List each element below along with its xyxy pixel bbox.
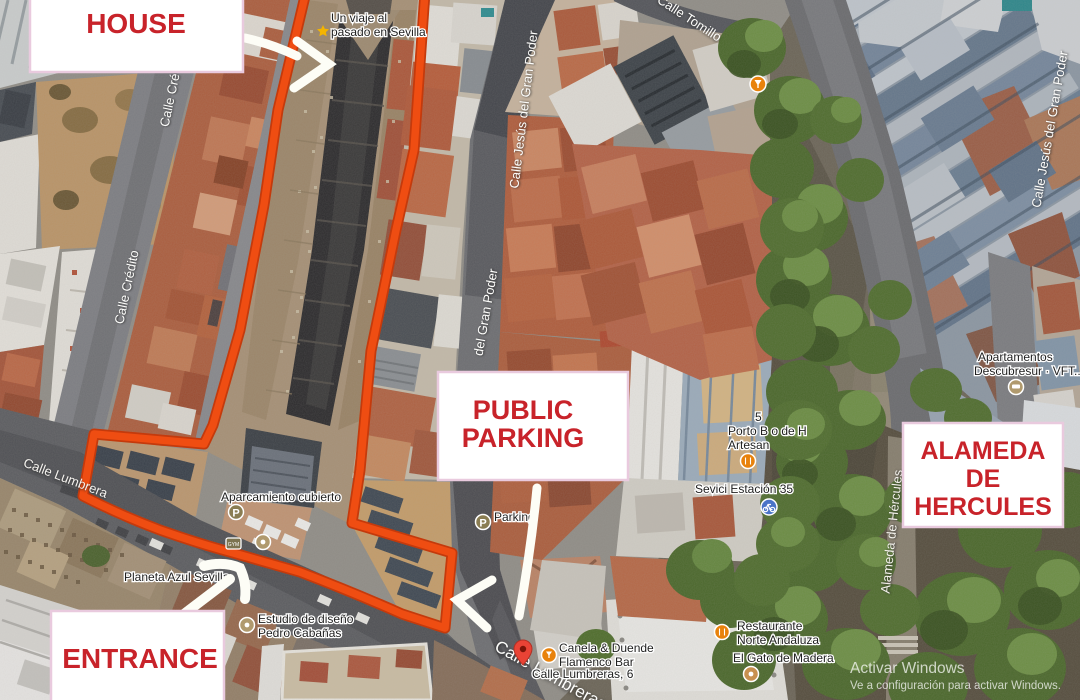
svg-text:Aparcamiento cubierto: Aparcamiento cubierto — [221, 490, 341, 504]
svg-text:Descubresur · VFT...: Descubresur · VFT... — [974, 364, 1080, 378]
svg-text:Ve a configuración para activa: Ve a configuración para activar Windows. — [850, 680, 1061, 692]
svg-text:Activar Windows: Activar Windows — [850, 660, 965, 677]
svg-text:Canela & Duende: Canela & Duende — [559, 641, 654, 655]
svg-text:Un viaje al: Un viaje al — [331, 11, 387, 25]
svg-text:HOUSE: HOUSE — [86, 8, 186, 39]
svg-text:ENTRANCE: ENTRANCE — [62, 643, 218, 674]
svg-text:P: P — [479, 518, 486, 530]
svg-text:Planeta Azul Sevilla: Planeta Azul Sevilla — [124, 570, 230, 584]
svg-text:Estudio de diseño: Estudio de diseño — [258, 612, 354, 626]
svg-text:PARKING: PARKING — [462, 423, 585, 453]
svg-text:Pedro Cabañas: Pedro Cabañas — [258, 626, 341, 640]
svg-text:5: 5 — [755, 410, 762, 424]
svg-text:Porto B o de H: Porto B o de H — [728, 424, 807, 438]
svg-text:HERCULES: HERCULES — [914, 493, 1052, 521]
svg-text:Parking: Parking — [494, 510, 535, 524]
svg-text:GYM: GYM — [228, 542, 239, 548]
svg-text:ALAMEDA: ALAMEDA — [921, 437, 1046, 465]
svg-text:El Gato de Madera: El Gato de Madera — [733, 651, 834, 665]
svg-text:DE: DE — [966, 465, 1001, 493]
svg-text:Sevici Estación 35: Sevici Estación 35 — [695, 482, 793, 496]
svg-text:Apartamentos: Apartamentos — [978, 350, 1053, 364]
svg-text:P: P — [232, 508, 239, 520]
svg-text:Artesan: Artesan — [728, 438, 769, 452]
svg-text:Restaurante: Restaurante — [737, 619, 803, 633]
svg-text:Norte Andaluza: Norte Andaluza — [737, 633, 819, 647]
svg-text:PUBLIC: PUBLIC — [473, 395, 574, 425]
svg-text:pasado en Sevilla: pasado en Sevilla — [331, 25, 426, 39]
svg-text:Calle Lumbreras, 6: Calle Lumbreras, 6 — [532, 667, 634, 681]
